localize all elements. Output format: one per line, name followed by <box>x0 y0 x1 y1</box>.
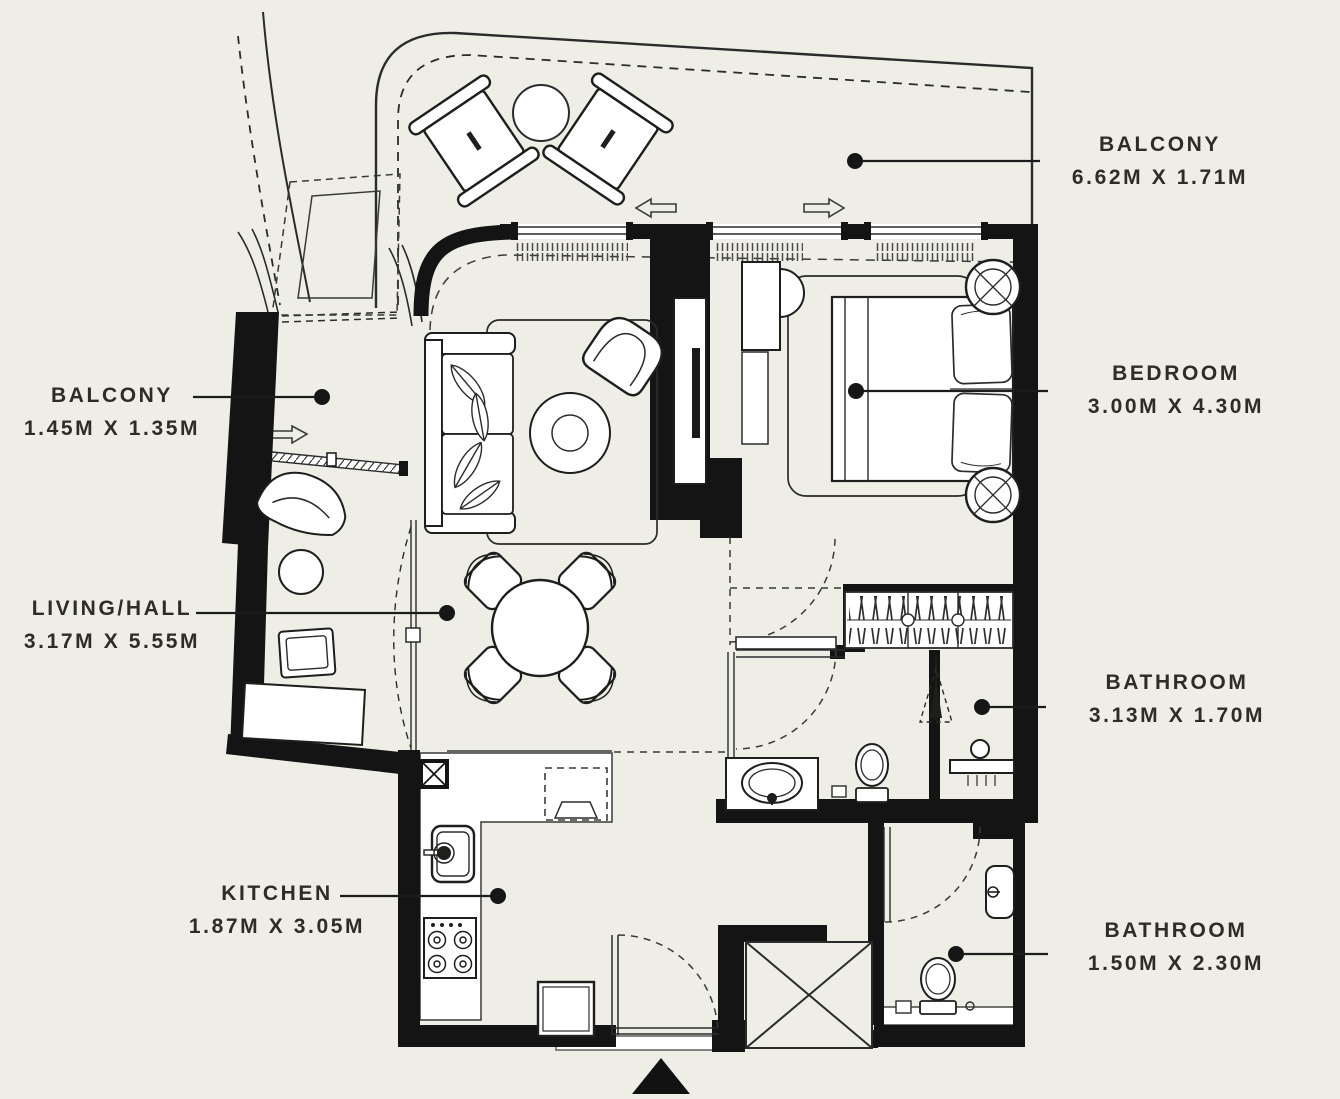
bathroom2-door-leaf <box>884 827 890 922</box>
room-name: BALCONY <box>1072 128 1248 161</box>
kitchen-counter <box>420 753 612 1020</box>
room-dimensions: 1.87M X 3.05M <box>189 910 365 943</box>
kitchen-stove <box>424 918 476 978</box>
label-balcony-left: BALCONY 1.45M X 1.35M <box>24 379 200 445</box>
room-dimensions: 1.50M X 2.30M <box>1088 947 1264 980</box>
dining-table <box>492 580 588 676</box>
kitchen-column-x-icon <box>423 763 445 785</box>
service-shaft <box>746 942 872 1048</box>
sofa <box>425 333 515 533</box>
bedside-table <box>966 468 1020 522</box>
room-name: BATHROOM <box>1088 914 1264 947</box>
room-name: BEDROOM <box>1088 357 1264 390</box>
bathroom1-door-leaf <box>736 637 836 649</box>
label-kitchen: KITCHEN 1.87M X 3.05M <box>189 877 365 943</box>
balcony-left-window <box>257 447 408 476</box>
bathroom1-flush-plate <box>832 786 846 797</box>
floor-plan: BALCONY 6.62M X 1.71M BALCONY 1.45M X 1.… <box>0 0 1340 1099</box>
room-name: BATHROOM <box>1089 666 1265 699</box>
room-name: KITCHEN <box>189 877 365 910</box>
kitchen-fridge <box>538 982 594 1036</box>
balcony-nook-partition <box>394 520 420 750</box>
nook-desk <box>242 683 365 745</box>
windows-top <box>513 224 985 239</box>
terrace-lounge-chair-2 <box>541 71 675 206</box>
pillow <box>952 393 1013 473</box>
kitchen-sink <box>424 826 474 882</box>
direction-arrow-left-icon <box>636 199 676 217</box>
label-bathroom-1: BATHROOM 3.13M X 1.70M <box>1089 666 1265 732</box>
tv-console <box>674 298 706 484</box>
coffee-table <box>530 393 610 473</box>
entrance-door-leaf <box>612 935 718 1035</box>
terrace-outline <box>238 12 1032 326</box>
room-dimensions: 3.13M X 1.70M <box>1089 699 1265 732</box>
room-name: BALCONY <box>24 379 200 412</box>
bathroom2-basin <box>986 866 1014 918</box>
bathroom1-vanity <box>726 758 818 810</box>
label-living-hall: LIVING/HALL 3.17M X 5.55M <box>24 592 200 658</box>
terrace-planter <box>272 174 400 315</box>
terrace-round-table <box>513 85 569 141</box>
label-bedroom: BEDROOM 3.00M X 4.30M <box>1088 357 1264 423</box>
bedroom-dresser <box>742 262 804 444</box>
bedside-table <box>966 260 1020 314</box>
room-dimensions: 3.17M X 5.55M <box>24 625 200 658</box>
direction-arrow-right-icon <box>804 199 844 217</box>
room-dimensions: 6.62M X 1.71M <box>1072 161 1248 194</box>
balcony-left-arrow-icon <box>268 426 307 443</box>
bathroom2-toilet <box>896 958 974 1014</box>
label-balcony-top: BALCONY 6.62M X 1.71M <box>1072 128 1248 194</box>
room-name: LIVING/HALL <box>24 592 200 625</box>
leader-lines <box>193 161 1048 954</box>
label-bathroom-2: BATHROOM 1.50M X 2.30M <box>1088 914 1264 980</box>
pillow <box>952 304 1013 384</box>
entrance-arrow-icon <box>632 1058 690 1094</box>
nook-chair <box>278 628 335 678</box>
bathroom1-toilet <box>856 744 888 802</box>
room-dimensions: 1.45M X 1.35M <box>24 412 200 445</box>
curtains <box>516 240 976 261</box>
wardrobe <box>845 592 1013 648</box>
nook-side-table <box>279 550 323 594</box>
room-dimensions: 3.00M X 4.30M <box>1088 390 1264 423</box>
